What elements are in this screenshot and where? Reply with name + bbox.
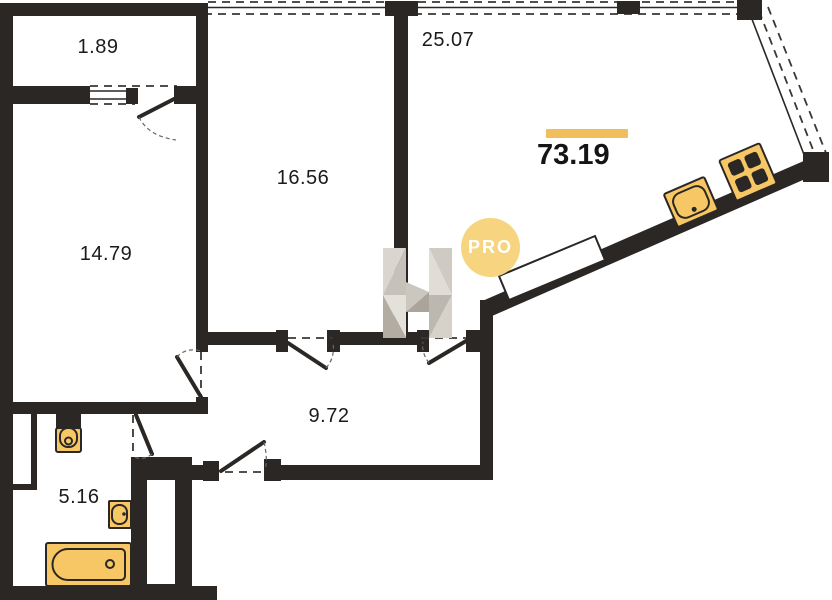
total-area-accent-bar: [546, 129, 628, 138]
area-label-bedroom: 16.56: [268, 167, 338, 190]
n-logo-watermark: [383, 248, 452, 338]
floor-plan-drawing: [0, 0, 832, 600]
pro-badge: PRO: [461, 218, 520, 277]
door-room-14: [177, 350, 201, 397]
area-label-bathroom: 5.16: [44, 486, 114, 509]
area-label-corridor: 9.72: [294, 405, 364, 428]
door-bedroom: [288, 338, 333, 368]
door-bathroom: [133, 415, 152, 458]
area-label-balcony: 1.89: [63, 36, 133, 59]
door-entrance: [221, 442, 266, 472]
area-label-room: 14.79: [71, 243, 141, 266]
toilet-icon: [56, 412, 81, 452]
pro-badge-label: PRO: [468, 237, 513, 258]
area-label-living-room: 25.07: [413, 29, 483, 52]
bathtub-icon: [46, 543, 131, 586]
floor-plan: 1.89 25.07 16.56 14.79 9.72 5.16 73.19 P…: [0, 0, 832, 600]
total-area-value: 73.19: [537, 139, 637, 172]
duct-shaft: [147, 480, 175, 584]
door-balcony: [139, 98, 176, 140]
